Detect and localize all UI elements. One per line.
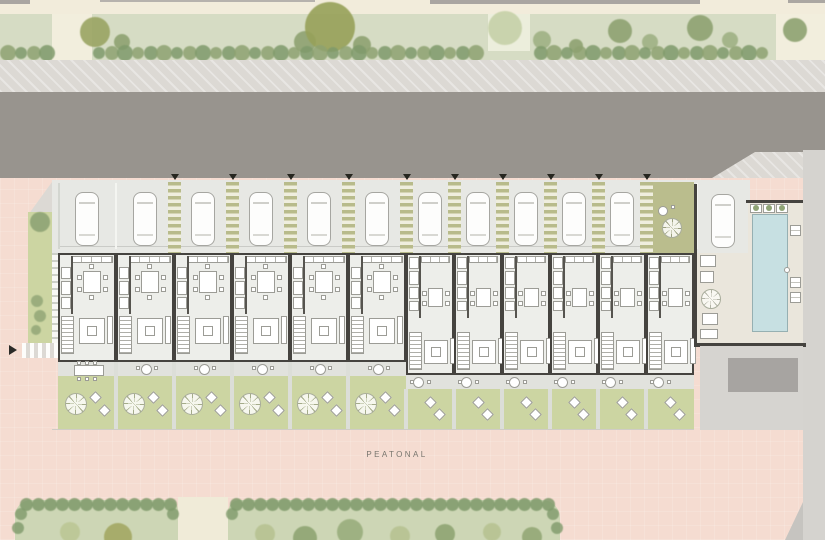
bath-fixture <box>351 281 361 295</box>
side-sofa <box>339 316 345 344</box>
hedge-icon <box>92 498 105 511</box>
hedge-icon <box>290 498 303 511</box>
tree-icon <box>608 19 632 43</box>
hedge-icon <box>152 498 165 511</box>
terrace-round-table <box>373 364 384 375</box>
bath-fixture <box>553 287 563 299</box>
hedge-icon <box>326 498 339 511</box>
chair <box>93 361 97 365</box>
hedge-icon <box>116 498 129 511</box>
bench <box>700 271 714 283</box>
chair <box>194 366 198 370</box>
tree-icon <box>312 45 328 61</box>
entry-arrow-icon <box>547 174 555 180</box>
car-rear-window <box>79 234 95 236</box>
sofa-cushion <box>203 326 213 336</box>
chair <box>251 275 256 280</box>
entry-arrow-icon <box>451 174 459 180</box>
dining-table <box>315 271 333 293</box>
hedge-icon <box>410 498 423 511</box>
hedge-icon <box>506 498 519 511</box>
sofa-cushion <box>145 326 155 336</box>
stairs <box>293 316 306 354</box>
green-walkway <box>448 182 461 253</box>
hedge-icon <box>547 508 559 520</box>
bath-fixture <box>457 287 467 299</box>
chair <box>77 361 81 365</box>
car-windshield <box>566 202 582 204</box>
hedge-icon <box>434 498 447 511</box>
chair <box>427 380 431 384</box>
tree-icon <box>663 45 679 61</box>
sofa-cushion <box>377 326 387 336</box>
bath-fixture <box>457 257 467 269</box>
chair <box>277 287 282 292</box>
plaza-curb-line <box>52 429 694 430</box>
chair <box>541 301 546 306</box>
car-icon <box>365 192 389 246</box>
chair <box>619 380 623 384</box>
bath-fixture <box>505 271 515 285</box>
tree-icon <box>783 18 807 42</box>
chair <box>422 291 427 296</box>
hedge-icon <box>242 498 255 511</box>
chair <box>637 301 642 306</box>
chair <box>85 377 89 381</box>
sidewalk-north <box>0 60 825 92</box>
dining-table <box>476 288 491 307</box>
bath-fixture <box>235 281 245 295</box>
bath-fixture <box>119 267 129 279</box>
planter-shrub-icon <box>766 205 772 211</box>
tree-icon <box>585 45 601 61</box>
chair <box>103 287 108 292</box>
garden-divider <box>596 389 600 429</box>
tree-icon <box>687 15 713 41</box>
hedge-icon <box>350 498 363 511</box>
chair <box>161 275 166 280</box>
planter-shrub-icon <box>779 205 785 211</box>
planter-shrub-icon <box>753 205 759 211</box>
bath-fixture <box>177 297 187 309</box>
garden-divider <box>288 362 292 429</box>
car-rear-window <box>614 234 630 236</box>
car-icon <box>562 192 586 246</box>
chair <box>662 291 667 296</box>
car-icon <box>75 192 99 246</box>
kitchen-counter <box>129 256 171 263</box>
hedge-icon <box>362 498 375 511</box>
terrace-round-table <box>605 377 616 388</box>
hedge-icon <box>338 498 351 511</box>
chair <box>614 291 619 296</box>
closet-counter <box>469 256 498 263</box>
bath-fixture <box>409 301 419 311</box>
terrace-round-table <box>557 377 568 388</box>
bath-fixture <box>61 281 71 295</box>
chair <box>650 380 654 384</box>
chair <box>85 361 89 365</box>
interior-wall <box>563 256 565 318</box>
car-rear-window <box>137 234 153 236</box>
stairs <box>457 332 470 370</box>
bench <box>702 313 718 325</box>
chair <box>493 301 498 306</box>
tree-icon <box>234 45 250 61</box>
car-windshield <box>369 202 385 204</box>
chair <box>367 287 372 292</box>
tree-icon <box>351 45 367 61</box>
chair <box>335 287 340 292</box>
entry-arrow-icon <box>643 174 651 180</box>
chair <box>89 264 94 269</box>
chair <box>506 380 510 384</box>
bath-fixture <box>177 281 187 295</box>
parking-divider <box>58 183 60 249</box>
chair <box>386 366 390 370</box>
garden-tree-icon <box>355 393 377 415</box>
entry-arrow-icon <box>229 174 237 180</box>
swimming-pool <box>752 214 788 332</box>
hedge-icon <box>32 498 45 511</box>
hedge-icon <box>398 498 411 511</box>
hedge-icon <box>68 498 81 511</box>
interior-wall <box>245 256 247 314</box>
chair <box>393 275 398 280</box>
chair <box>77 287 82 292</box>
hedge-icon <box>470 498 483 511</box>
stairs <box>235 316 248 354</box>
bath-fixture <box>293 297 303 309</box>
lounger-icon <box>790 277 801 288</box>
tree-icon <box>31 295 43 307</box>
hedge-icon <box>458 498 471 511</box>
chair <box>685 301 690 306</box>
garden-divider <box>500 389 504 429</box>
bath-fixture <box>601 301 611 311</box>
tree-icon <box>678 47 690 59</box>
stairs <box>649 332 662 370</box>
car-rear-window <box>470 234 486 236</box>
bath-fixture <box>553 301 563 311</box>
terrace-round-table <box>199 364 210 375</box>
chair <box>252 366 256 370</box>
entry-arrow-icon <box>403 174 411 180</box>
side-sofa <box>223 316 229 344</box>
skyline-building <box>100 0 315 2</box>
chair <box>103 275 108 280</box>
chair <box>193 287 198 292</box>
stairs <box>553 332 566 370</box>
chair <box>410 380 414 384</box>
stairs <box>409 332 422 370</box>
chair <box>379 295 384 300</box>
chair <box>458 380 462 384</box>
stairs <box>177 316 190 354</box>
chair <box>445 301 450 306</box>
bath-fixture <box>61 297 71 309</box>
bath-fixture <box>409 287 419 299</box>
west-entry-arrow-icon <box>9 345 17 355</box>
chair <box>219 287 224 292</box>
chair <box>475 380 479 384</box>
car-rear-window <box>715 236 731 238</box>
courtyard-chair <box>671 205 675 209</box>
chair <box>566 301 571 306</box>
tree-icon <box>0 45 16 61</box>
garden-tree-icon <box>65 393 87 415</box>
chair <box>205 264 210 269</box>
car-windshield <box>470 202 486 204</box>
car-icon <box>133 192 157 246</box>
tree-icon <box>255 524 275 540</box>
chair <box>321 295 326 300</box>
pool-block-wall-north <box>746 200 803 203</box>
chair <box>566 291 571 296</box>
kitchen-counter <box>361 256 403 263</box>
entry-arrow-icon <box>345 174 353 180</box>
hedge-icon <box>12 522 24 534</box>
hedge-icon <box>278 498 291 511</box>
chair <box>93 377 97 381</box>
tree-icon <box>30 212 50 232</box>
chair <box>219 275 224 280</box>
hedge-icon <box>374 498 387 511</box>
skyline-building <box>0 0 30 4</box>
terrace-round-table <box>141 364 152 375</box>
kitchen-counter <box>303 256 345 263</box>
car-windshield <box>614 202 630 204</box>
green-walkway <box>342 182 355 253</box>
skyline-building <box>430 0 700 4</box>
car-icon <box>514 192 538 246</box>
green-walkway <box>640 182 653 253</box>
lounger-icon <box>790 292 801 303</box>
terrace-round-table <box>257 364 268 375</box>
garden-tree-icon <box>123 393 145 415</box>
car-windshield <box>311 202 327 204</box>
green-walkway <box>168 182 181 253</box>
tree-icon <box>39 45 55 61</box>
chair <box>89 295 94 300</box>
interior-wall <box>71 256 73 314</box>
tree-icon <box>305 2 355 52</box>
bath-fixture <box>601 271 611 285</box>
chair <box>518 301 523 306</box>
tree-icon <box>561 47 573 59</box>
tree-icon <box>337 519 363 540</box>
chair <box>393 287 398 292</box>
sofa-cushion <box>261 326 271 336</box>
pool-block-wall-west <box>694 184 697 346</box>
car-icon <box>249 192 273 246</box>
site-plan-canvas: PEATONAL <box>0 0 825 540</box>
dining-table <box>373 271 391 293</box>
tree-icon <box>717 47 729 59</box>
car-icon <box>191 192 215 246</box>
garden-divider <box>346 362 350 429</box>
tree-icon <box>483 523 501 540</box>
hedge-icon <box>15 508 27 520</box>
stairs <box>61 316 74 354</box>
tree-icon <box>288 47 300 59</box>
hedge-icon <box>140 498 153 511</box>
green-walkway <box>544 182 557 253</box>
chair <box>335 275 340 280</box>
bath-fixture <box>649 287 659 299</box>
chair <box>379 264 384 269</box>
kitchen-counter <box>245 256 287 263</box>
tree-icon <box>132 47 144 59</box>
closet-counter <box>661 256 690 263</box>
tree-icon <box>390 45 406 61</box>
chair <box>147 264 152 269</box>
bath-fixture <box>235 267 245 279</box>
bath-fixture <box>505 287 515 299</box>
tree-icon <box>488 11 522 45</box>
tree-icon <box>756 47 768 59</box>
bath-fixture <box>601 287 611 299</box>
bench <box>700 255 716 267</box>
tree-icon <box>366 47 378 59</box>
bath-fixture <box>119 297 129 309</box>
driveway-pad <box>728 358 798 392</box>
car-icon <box>418 192 442 246</box>
tree-icon <box>429 45 445 61</box>
hedge-icon <box>494 498 507 511</box>
sofa-cushion <box>479 347 489 357</box>
hedge-icon <box>518 498 531 511</box>
hedge-icon <box>314 498 327 511</box>
hedge-icon <box>446 498 459 511</box>
interior-wall <box>467 256 469 318</box>
closet-counter <box>421 256 450 263</box>
tree-icon <box>60 522 80 540</box>
chair <box>277 275 282 280</box>
entry-arrow-icon <box>287 174 295 180</box>
closet-counter <box>565 256 594 263</box>
hedge-icon <box>266 498 279 511</box>
chair <box>212 366 216 370</box>
garden-divider <box>230 362 234 429</box>
terrace-long-table <box>74 365 104 376</box>
top-skyline-strip <box>0 0 825 14</box>
stairs <box>601 332 614 370</box>
stairs <box>119 316 132 354</box>
chair <box>263 264 268 269</box>
hedge-icon <box>386 498 399 511</box>
chair <box>135 287 140 292</box>
stairs <box>351 316 364 354</box>
chair <box>193 275 198 280</box>
skyline-building <box>788 0 825 3</box>
tree-icon <box>156 45 172 61</box>
hedge-icon <box>482 498 495 511</box>
interior-wall <box>515 256 517 318</box>
chair <box>614 301 619 306</box>
terrace-round-table <box>413 377 424 388</box>
west-entry-crosswalk <box>22 343 58 358</box>
tree-icon <box>405 47 417 59</box>
parasol-icon <box>701 289 721 309</box>
garden-tree-icon <box>297 393 319 415</box>
garden-divider <box>114 362 118 429</box>
chair <box>554 380 558 384</box>
side-sofa <box>165 316 171 344</box>
hedge-icon <box>302 498 315 511</box>
closet-counter <box>613 256 642 263</box>
tree-icon <box>546 45 562 61</box>
tree-icon <box>273 45 289 61</box>
garden-divider <box>644 389 648 429</box>
chair <box>470 291 475 296</box>
terrace-round-table <box>315 364 326 375</box>
chair <box>470 301 475 306</box>
chair <box>270 366 274 370</box>
chair <box>147 295 152 300</box>
car-windshield <box>253 202 269 204</box>
bath-fixture <box>457 271 467 285</box>
tree-icon <box>80 17 110 47</box>
garden-divider <box>452 389 456 429</box>
green-walkway <box>496 182 509 253</box>
bath-fixture <box>553 257 563 269</box>
chair <box>589 301 594 306</box>
chair <box>205 295 210 300</box>
chair <box>571 380 575 384</box>
dining-table <box>141 271 159 293</box>
bath-fixture <box>505 301 515 311</box>
kitchen-counter <box>187 256 229 263</box>
terrace-round-table <box>461 377 472 388</box>
tree-icon <box>624 45 640 61</box>
stairs <box>505 332 518 370</box>
hedge-icon <box>80 498 93 511</box>
car-rear-window <box>311 234 327 236</box>
side-sofa <box>397 316 403 344</box>
dining-table <box>428 288 443 307</box>
side-street-east <box>803 150 825 540</box>
hedge-icon <box>104 498 117 511</box>
hedge-icon <box>254 498 267 511</box>
bath-fixture <box>351 297 361 309</box>
car-rear-window <box>422 234 438 236</box>
chair <box>310 366 314 370</box>
tree-icon <box>327 47 339 59</box>
car-windshield <box>422 202 438 204</box>
chair <box>309 287 314 292</box>
tree-icon <box>435 524 455 540</box>
chair <box>662 301 667 306</box>
interior-wall <box>419 256 421 318</box>
chair <box>161 287 166 292</box>
parasol-icon <box>662 218 682 238</box>
parking-divider <box>115 183 117 249</box>
bath-fixture <box>649 301 659 311</box>
bath-fixture <box>553 271 563 285</box>
side-sofa <box>107 316 113 344</box>
dining-table <box>524 288 539 307</box>
dining-table <box>257 271 275 293</box>
dining-table <box>620 288 635 307</box>
garden-divider <box>404 389 408 429</box>
chair <box>321 264 326 269</box>
sofa-cushion <box>575 347 585 357</box>
car-icon <box>711 194 735 248</box>
car-icon <box>307 192 331 246</box>
bench <box>700 329 718 339</box>
tree-icon <box>390 526 410 540</box>
